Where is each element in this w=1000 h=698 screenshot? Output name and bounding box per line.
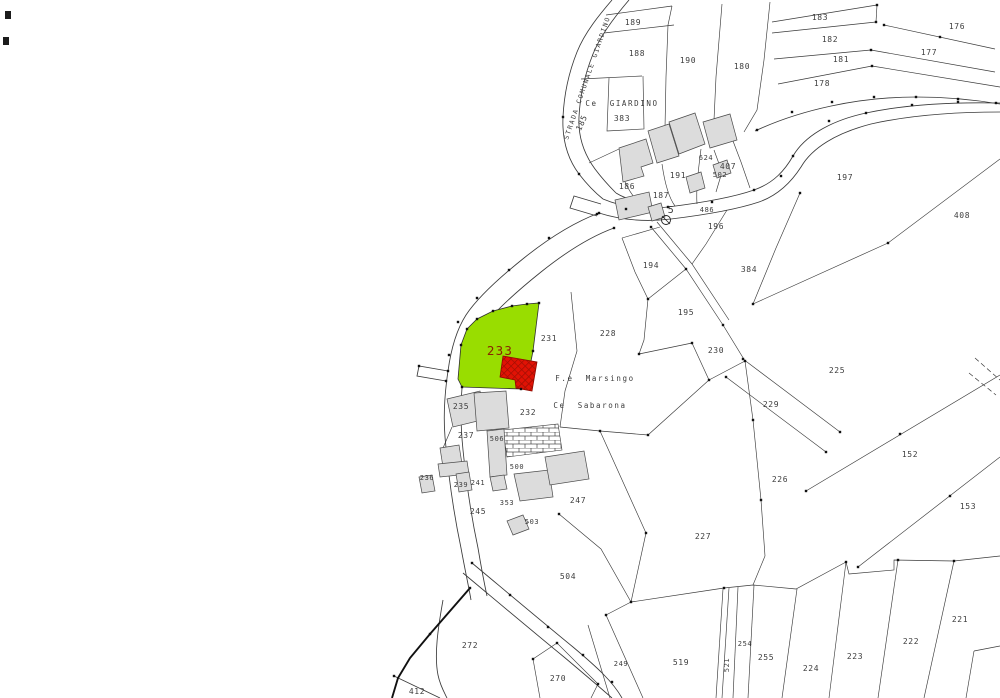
parcel-label-177: 177 [921,48,937,57]
parcel-boundary-line [924,561,954,698]
parcel-label-195: 195 [678,308,694,317]
parcel-label-503: 503 [525,518,539,526]
survey-point-dot [791,111,793,113]
parcel-label-245: 245 [470,507,486,516]
place-label-fe-marsingo: F.e Marsingo [555,374,634,383]
survey-point-dot [448,354,450,356]
parcel-label-506: 506 [490,435,504,443]
parcel-label-272: 272 [462,641,478,650]
survey-point-dot [597,683,599,685]
survey-point-dot [598,212,600,214]
survey-point-dot [723,587,725,589]
survey-point-dot [460,344,462,346]
parcel-label-176: 176 [949,22,965,31]
parcel-label-383: 383 [614,114,630,123]
parcel-label-353: 353 [500,499,514,507]
survey-point-dot [870,49,872,51]
building-footprint [619,139,653,182]
parcel-label-221: 221 [952,615,968,624]
parcel-boundary-line [966,651,974,698]
survey-point-dot [471,562,473,564]
survey-point-dot [476,297,478,299]
parcel-boundary-line [648,269,686,299]
parcel-boundary-line [559,514,631,602]
survey-point-dot [509,594,511,596]
parcel-boundary-line [772,22,876,33]
survey-point-dot [876,4,878,6]
parcel-boundary-line [806,375,1000,491]
parcel-boundary-line [716,589,723,698]
survey-point-dot [753,189,755,191]
survey-point-dot [865,112,867,114]
place-label-ce-giardino: Ce GIARDINO [585,99,658,108]
dashed-boundary-layer [969,358,1000,395]
parcel-boundary-line [722,588,729,698]
survey-point-dot [873,96,875,98]
parcel-label-153: 153 [960,502,976,511]
parcel-label-231: 231 [541,334,557,343]
survey-point-dot [911,104,913,106]
parcel-label-228: 228 [600,329,616,338]
parcel-boundary-line [753,243,888,304]
survey-point-dot [742,358,744,360]
parcel-label-232: 232 [520,408,536,417]
parcel-boundary-line [600,431,646,602]
survey-point-dot [562,116,564,118]
building-footprint [686,172,705,193]
survey-point-dot [638,353,640,355]
survey-point-dot [578,173,580,175]
survey-point-dot [418,365,420,367]
parcel-boundary-line [631,562,846,602]
survey-point-dot [556,642,558,644]
parcel-label-226: 226 [772,475,788,484]
survey-point-dot [725,376,727,378]
building-footprint [703,114,737,148]
brick-wall-area [503,424,562,457]
survey-point-dot [711,201,713,203]
parcel-boundary-line [829,562,846,698]
parcel-label-504: 504 [560,572,576,581]
parcel-label-233: 233 [487,343,513,358]
building-footprint [474,391,509,431]
parcel-label-178: 178 [814,79,830,88]
parcel-boundary-line [723,325,765,585]
survey-point-dot [582,654,584,656]
place-label-ce-sabarona: Ce Sabarona [553,401,626,410]
survey-point-dot [613,227,615,229]
parcel-label-181: 181 [833,55,849,64]
survey-point-dot [799,192,801,194]
survey-point-dot [722,324,724,326]
survey-point-dot [805,490,807,492]
parcel-boundary-line [876,5,877,22]
parcel-label-235: 235 [453,402,469,411]
parcel-boundary-line [878,560,898,698]
parcel-boundary-line [639,299,648,354]
survey-point-dot [685,268,687,270]
survey-point-dot [526,303,528,305]
parcel-boundary-line [974,646,1000,651]
survey-point-dot [599,430,601,432]
parcel-label-237: 237 [458,431,474,440]
survey-point-dot [752,419,754,421]
parcel-boundary-line [639,343,692,354]
survey-point-dot [520,388,522,390]
parcel-label-241: 241 [471,479,485,487]
parcel-boundary-line [533,643,598,698]
survey-point-dot [756,129,758,131]
parcel-boundary-line [665,6,672,128]
survey-point-dot [647,434,649,436]
parcel-label-224: 224 [803,664,819,673]
survey-point-dot [780,175,782,177]
parcel-boundary-line [774,50,871,59]
parcel-label-225: 225 [829,366,845,375]
parcel-boundary-line [888,159,1000,243]
parcel-boundary-line [622,227,660,238]
survey-point-dot [650,226,652,228]
survey-point-dot [875,21,877,23]
survey-point-dot [760,499,762,501]
survey-point-dot [647,298,649,300]
parcel-label-229: 229 [763,400,779,409]
parcel-boundary-line [606,602,631,615]
parcel-label-188: 188 [629,49,645,58]
survey-point-dot [558,513,560,515]
parcel-label-500: 500 [510,463,524,471]
map-edge-marks [3,11,11,45]
survey-point-dot [393,675,395,677]
parcel-boundary-line [657,222,729,320]
survey-point-dot [957,98,959,100]
parcel-boundary-line [589,149,619,163]
parcel-label-521: 521 [723,658,731,672]
road-edge-line [472,563,622,698]
parcel-boundary-line [753,193,800,304]
road-edge-line [436,600,447,698]
survey-point-dot [957,101,959,103]
survey-point-dot [915,96,917,98]
survey-point-dot [857,566,859,568]
parcel-label-519: 519 [673,658,689,667]
survey-point-dot [469,587,471,589]
road-edge-line [755,97,1000,131]
survey-point-dot [630,601,632,603]
survey-point-dot [708,379,710,381]
parcel-label-502: 502 [713,171,727,179]
parcel-boundary-line [560,427,600,431]
survey-point-dot [845,561,847,563]
parcel-label-182: 182 [822,35,838,44]
survey-point-dot [792,155,794,157]
parcel-label-384: 384 [741,265,757,274]
parcel-boundary-line [606,6,672,15]
parcel-boundary-line [858,457,1000,567]
building-footprint [545,451,589,485]
parcel-label-190: 190 [680,56,696,65]
parcel-boundary-line [714,4,722,120]
survey-point-dot [887,242,889,244]
road-edge-line [417,366,448,381]
survey-point-dot [538,302,540,304]
parcel-label-247: 247 [570,496,586,505]
survey-point-dot [897,559,899,561]
parcel-label-186: 186 [619,182,635,191]
survey-point-dot [548,237,550,239]
survey-point-dot [457,321,459,323]
survey-point-dot [949,495,951,497]
survey-point-dot [447,370,449,372]
road-edge-bold-line [392,588,470,698]
parcel-label-236: 236 [420,474,434,482]
parcel-label-180: 180 [734,62,750,71]
parcel-boundary-line [743,359,840,432]
parcel-label-230: 230 [708,346,724,355]
parcel-label-407: 407 [720,162,736,171]
parcel-label-239: 239 [454,481,468,489]
buildings-layer [419,113,737,535]
survey-point-dot [445,380,447,382]
building-footprint [514,470,553,501]
parcel-boundary-line [606,615,643,698]
parcel-label-152: 152 [902,450,918,459]
survey-point-dot [839,431,841,433]
survey-point-dot [625,208,627,210]
survey-point-dot [611,681,613,683]
well-label-5: 5 [668,205,675,216]
parcel-label-624: 624 [699,154,713,162]
parcel-boundary-line [872,66,1000,87]
dashed-boundary-line [969,373,996,395]
parcel-boundary-line [692,210,727,264]
parcel-label-189: 189 [625,18,641,27]
survey-point-dot [871,65,873,67]
parcel-boundary-line [692,343,709,380]
survey-point-dot [532,350,534,352]
parcel-boundary-line [726,377,826,452]
parcel-label-270: 270 [550,674,566,683]
survey-point-dot [547,626,549,628]
survey-point-dot [605,614,607,616]
building-footprint [490,475,507,491]
road-edge-line [463,573,612,698]
parcel-label-408: 408 [954,211,970,220]
survey-point-dot [752,303,754,305]
parcel-label-223: 223 [847,652,863,661]
survey-point-dot [476,318,478,320]
survey-point-dot [691,342,693,344]
parcel-label-255: 255 [758,653,774,662]
parcel-label-249: 249 [614,660,628,668]
survey-point-dot [645,532,647,534]
survey-point-dot [899,433,901,435]
survey-point-dot [532,658,534,660]
survey-point-dot [828,120,830,122]
parcel-label-486: 486 [700,206,714,214]
parcel-label-197: 197 [837,173,853,182]
survey-point-dot [883,24,885,26]
survey-point-dot [492,310,494,312]
survey-point-dot [466,328,468,330]
parcel-label-183: 183 [812,13,828,22]
parcel-label-187: 187 [653,191,669,200]
survey-point-dot [511,305,513,307]
parcel-label-412: 412 [409,687,425,696]
parcel-label-191: 191 [670,171,686,180]
dashed-boundary-line [975,358,1000,380]
cadastral-map[interactable]: 189188190180183182181178176177197408Ce G… [0,0,1000,698]
survey-point-dot [825,451,827,453]
survey-point-dot [461,386,463,388]
survey-point-dot [429,633,431,635]
parcel-boundary-line [533,659,540,698]
survey-point-dot [831,101,833,103]
parcel-label-254: 254 [738,640,752,648]
parcel-boundary-line [782,589,797,698]
parcel-label-227: 227 [695,532,711,541]
parcel-label-196: 196 [708,222,724,231]
survey-point-dot [953,560,955,562]
parcel-label-194: 194 [643,261,659,270]
parcel-label-222: 222 [903,637,919,646]
survey-point-dot [995,102,997,104]
building-footprint [615,192,653,220]
survey-point-dot [939,36,941,38]
survey-point-dot [508,269,510,271]
